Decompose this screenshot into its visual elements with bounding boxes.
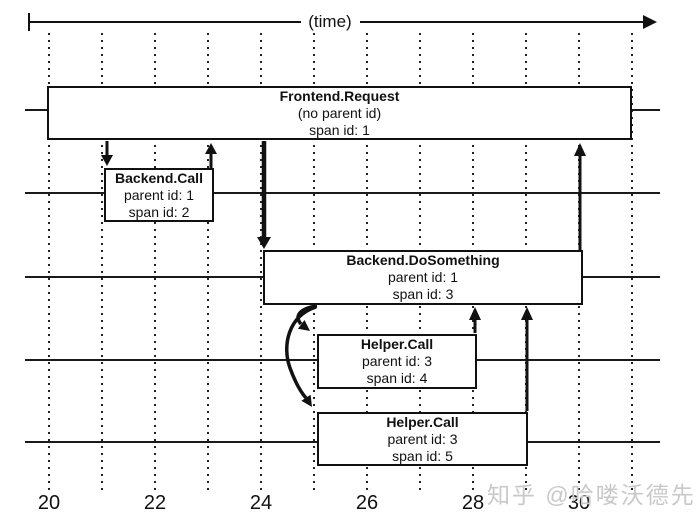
time-axis-label: (time) <box>300 12 360 32</box>
arrow-down-right-icon <box>301 395 312 407</box>
span-parent-id: parent id: 3 <box>387 431 457 448</box>
span-title: Helper.Call <box>361 336 433 353</box>
time-axis-line-right <box>360 21 644 23</box>
span-parent-id: parent id: 1 <box>124 187 194 204</box>
span-box-frontend-request: Frontend.Request (no parent id) span id:… <box>47 86 632 140</box>
span-id: span id: 1 <box>309 122 370 139</box>
span-box-backend-call: Backend.Call parent id: 1 span id: 2 <box>104 168 214 222</box>
axis-tick-label: 24 <box>250 492 272 515</box>
axis-tick-label: 28 <box>462 492 484 515</box>
span-box-backend-dosomething: Backend.DoSomething parent id: 1 span id… <box>263 250 583 305</box>
arrow-up-icon <box>469 307 481 320</box>
span-title: Backend.DoSomething <box>346 252 499 269</box>
span-parent-id: parent id: 3 <box>362 353 432 370</box>
axis-tick-label: 20 <box>38 492 60 515</box>
arrow-up-icon <box>521 307 533 320</box>
arrow-down-right-icon <box>298 320 310 331</box>
span-parent-id: (no parent id) <box>298 105 381 122</box>
span-id: span id: 3 <box>393 286 454 303</box>
call-curve-line <box>287 307 316 398</box>
arrow-up-icon <box>574 143 586 156</box>
trace-diagram: (time) Frontend.Request (no parent id) s… <box>0 0 696 520</box>
time-axis-arrowhead-icon <box>643 15 657 29</box>
watermark-text: 知乎 @哈喽沃德先生 <box>487 476 696 510</box>
span-title: Backend.Call <box>115 170 203 187</box>
time-axis-line-left <box>29 21 301 23</box>
axis-tick-label: 22 <box>144 492 166 515</box>
span-parent-id: parent id: 1 <box>388 269 458 286</box>
span-title: Helper.Call <box>386 414 458 431</box>
span-title: Frontend.Request <box>280 88 400 105</box>
span-id: span id: 4 <box>367 370 428 387</box>
span-id: span id: 2 <box>129 204 190 221</box>
span-box-helper-call-5: Helper.Call parent id: 3 span id: 5 <box>317 412 528 466</box>
span-box-helper-call-4: Helper.Call parent id: 3 span id: 4 <box>317 334 477 389</box>
axis-tick-label: 26 <box>356 492 378 515</box>
span-id: span id: 5 <box>392 448 453 465</box>
